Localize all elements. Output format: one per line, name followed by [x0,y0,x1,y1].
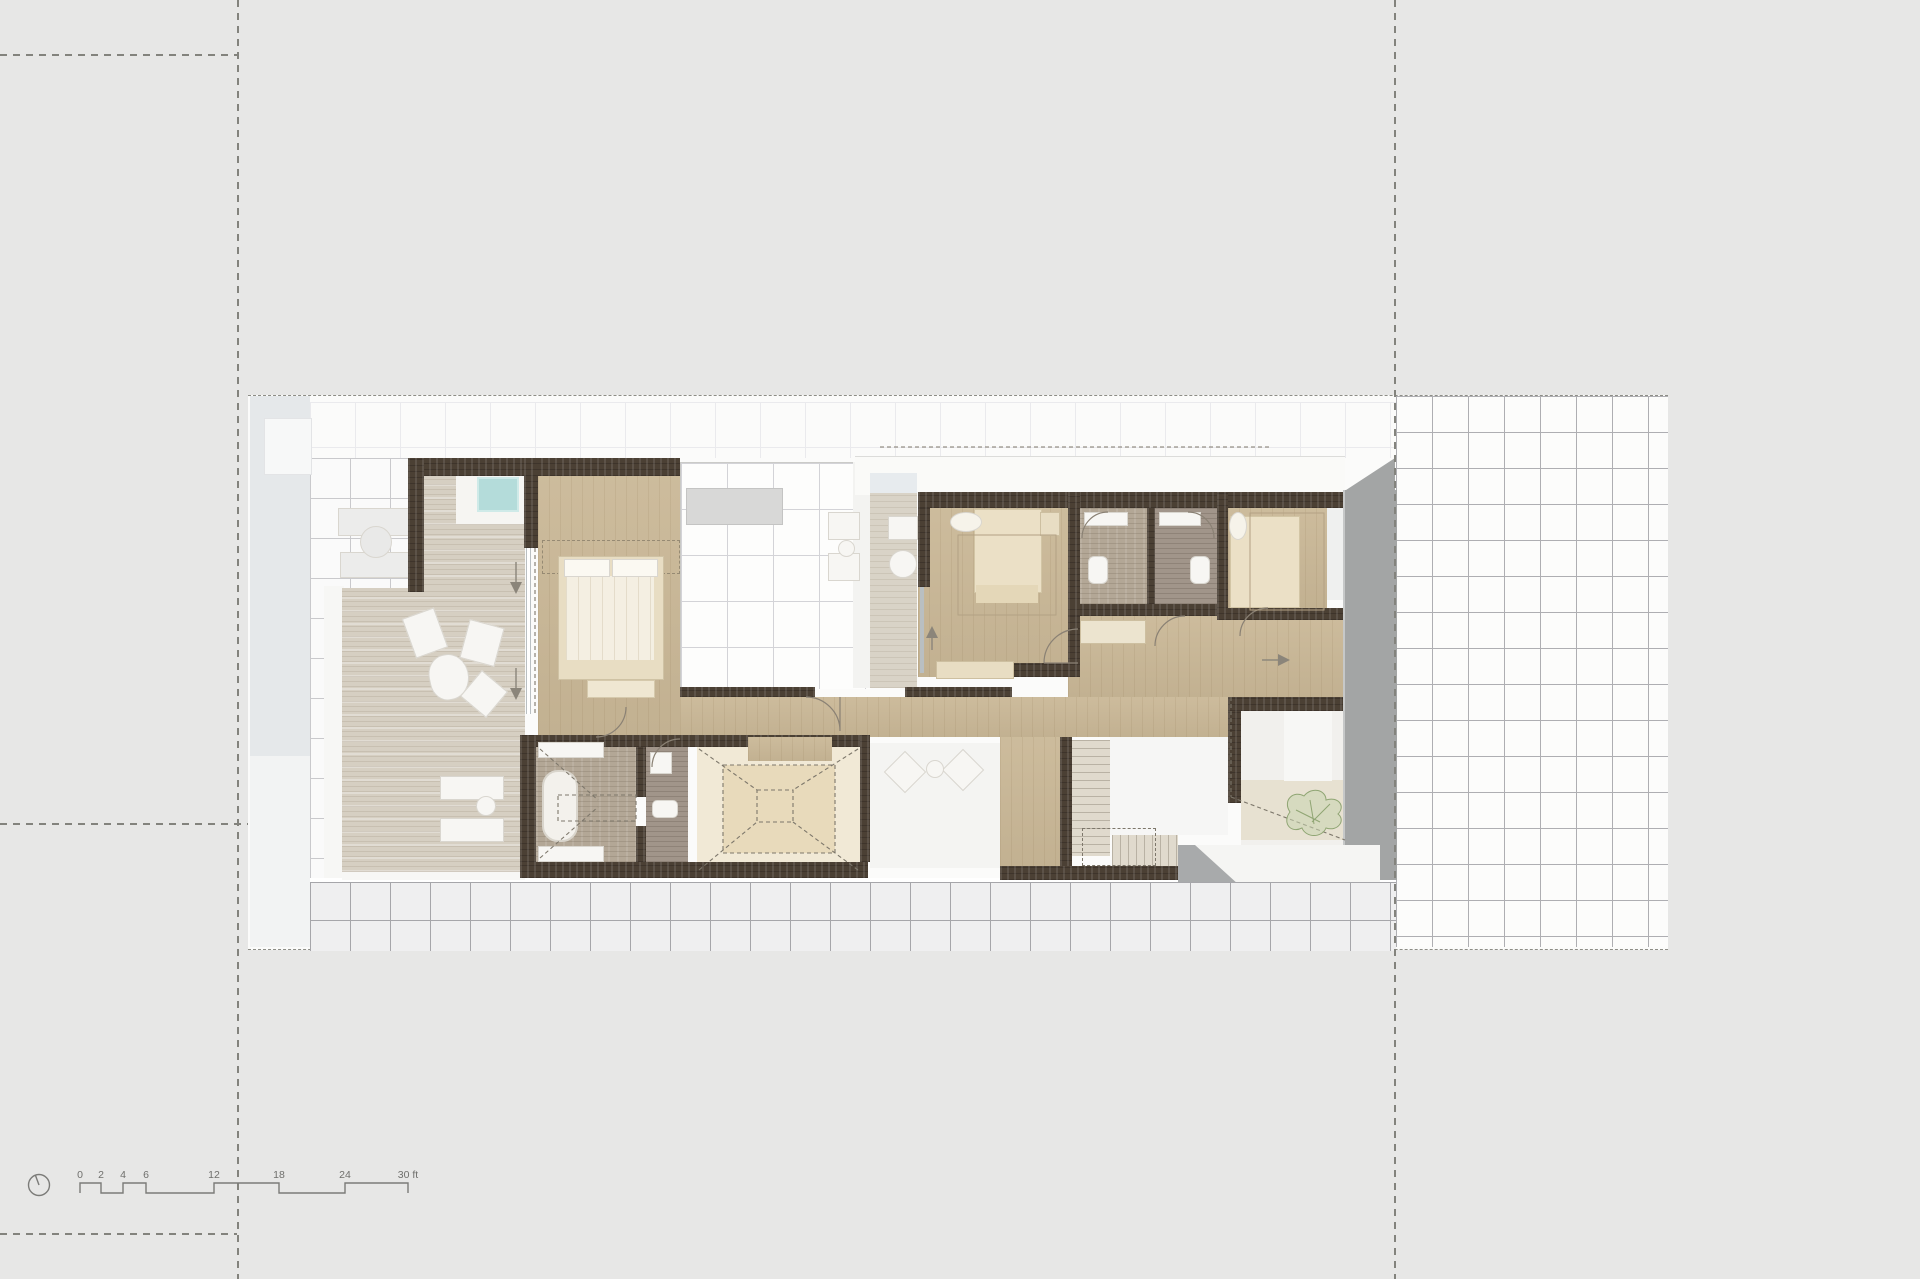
scale-label: 0 [77,1169,83,1181]
scale-labels: 0 2 4 6 12 18 24 30 ft [77,1169,418,1181]
north-indicator [29,1175,50,1196]
scale-label: 4 [120,1169,126,1181]
guide-line-vertical-right [1394,0,1396,1279]
scale-label: 18 [273,1169,285,1181]
guide-line-vertical-left [237,0,239,1279]
dashed-lines [535,447,1345,870]
scale-bar-line [80,1183,408,1193]
scale-bar: 0 2 4 6 12 18 24 30 ft [24,1166,424,1212]
rug-outlines [958,513,1324,615]
scale-label: 2 [98,1169,104,1181]
guide-line-mid-left [0,823,248,825]
direction-arrows [510,562,1290,700]
scale-label: 24 [339,1169,351,1181]
guide-line-bottom-left [0,1233,237,1235]
plan-linework [0,0,1920,1279]
floor-plan-sheet: 0 2 4 6 12 18 24 30 ft [0,0,1920,1279]
plant [1287,790,1341,835]
scale-label: 6 [143,1169,149,1181]
scale-label: 30 ft [398,1169,419,1181]
guide-line-top-left [0,54,237,56]
scale-label: 12 [208,1169,220,1181]
